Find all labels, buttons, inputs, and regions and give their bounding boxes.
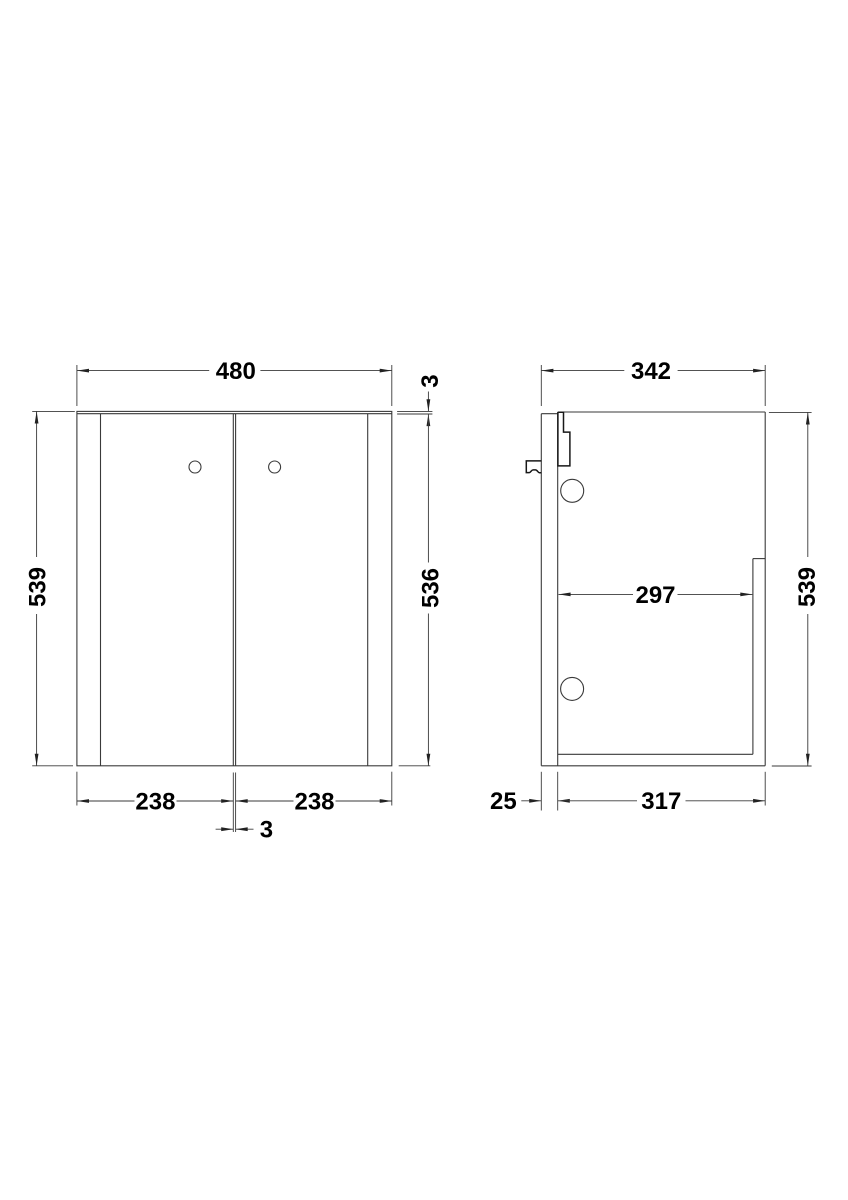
svg-text:238: 238 xyxy=(135,788,175,815)
svg-text:480: 480 xyxy=(216,358,256,385)
svg-text:238: 238 xyxy=(294,788,334,815)
svg-text:297: 297 xyxy=(635,582,675,609)
svg-text:25: 25 xyxy=(490,788,517,815)
svg-text:539: 539 xyxy=(794,567,821,607)
svg-text:539: 539 xyxy=(24,567,51,607)
svg-text:3: 3 xyxy=(417,374,444,387)
svg-text:536: 536 xyxy=(417,568,444,608)
svg-text:3: 3 xyxy=(260,817,273,844)
svg-text:342: 342 xyxy=(631,358,671,385)
svg-text:317: 317 xyxy=(641,788,681,815)
